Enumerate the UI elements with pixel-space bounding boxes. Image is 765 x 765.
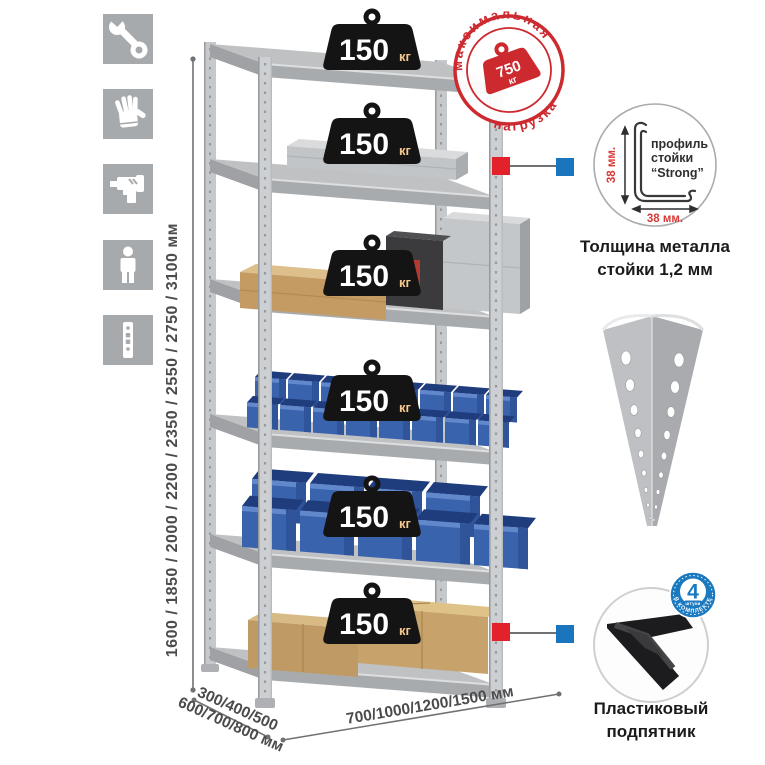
feature-tile-gloves	[103, 89, 153, 139]
weight-handle-icon	[366, 585, 378, 597]
max-load-stamp: максимальная нагрузка 750 кг	[443, 8, 575, 132]
shelf-load-badge-4: 150 кг	[317, 359, 427, 427]
rack-post-icon	[103, 315, 153, 365]
shelf-load-unit: кг	[399, 49, 412, 64]
shelf-load-badge-2: 150 кг	[317, 102, 427, 170]
wrench-icon	[103, 14, 153, 64]
profile-dim-horizontal: 38 мм.	[647, 213, 683, 225]
profile-label-1: профиль	[651, 137, 708, 151]
feature-tile-drill	[103, 164, 153, 214]
shelf-load-unit: кг	[399, 275, 412, 290]
shelf-load-value: 150	[339, 501, 389, 534]
shelf-load-badge-3: 150 кг	[317, 234, 427, 302]
angle-post-image	[595, 300, 713, 535]
shelf-load-value: 150	[339, 128, 389, 161]
post-profile-detail: 38 мм. 38 мм. профиль стойки “Strong”	[591, 101, 719, 229]
profile-label-3: “Strong”	[651, 166, 704, 180]
weight-handle-icon	[366, 11, 378, 23]
shelf-load-unit: кг	[399, 516, 412, 531]
shelf-load-value: 150	[339, 608, 389, 641]
detail-connector-line-bottom	[508, 632, 560, 634]
shelf-load-unit: кг	[399, 143, 412, 158]
feature-tile-person	[103, 240, 153, 290]
shelf-load-badge-5: 150 кг	[317, 475, 427, 543]
drill-icon	[103, 164, 153, 214]
detail-marker-red-bottom	[492, 623, 510, 641]
included-count-badge: 4 штуки в комплекте	[668, 570, 718, 620]
weight-handle-icon	[366, 362, 378, 374]
detail-marker-blue-top	[556, 158, 574, 176]
person-icon	[103, 240, 153, 290]
detail-connector-line-top	[508, 165, 560, 167]
shelf-load-badge-6: 150 кг	[317, 582, 427, 650]
feature-tile-assembly	[103, 14, 153, 64]
shelf-load-unit: кг	[399, 400, 412, 415]
profile-dim-vertical: 38 мм.	[606, 147, 618, 183]
height-dimension-label: 1600 / 1850 / 2000 / 2200 / 2350 / 2550 …	[158, 180, 188, 700]
product-infographic: 1600 / 1850 / 2000 / 2200 / 2350 / 2550 …	[0, 0, 765, 765]
detail-marker-blue-bottom	[556, 625, 574, 643]
foot-caption: Пластиковый подпятник	[556, 698, 746, 744]
weight-handle-icon	[366, 237, 378, 249]
shelf-load-value: 150	[339, 260, 389, 293]
shelf-load-badge-1: 150 кг	[317, 8, 427, 76]
gloves-icon	[103, 89, 153, 139]
feature-tile-rack-post	[103, 315, 153, 365]
weight-handle-icon	[366, 478, 378, 490]
shelf-load-value: 150	[339, 385, 389, 418]
detail-marker-red-top	[492, 157, 510, 175]
shelf-load-value: 150	[339, 34, 389, 67]
included-count-sub: штуки	[685, 601, 700, 606]
weight-handle-icon	[366, 105, 378, 117]
profile-caption: Толщина металла стойки 1,2 мм	[560, 236, 750, 282]
profile-label-2: стойки	[651, 151, 693, 165]
shelf-load-unit: кг	[399, 623, 412, 638]
